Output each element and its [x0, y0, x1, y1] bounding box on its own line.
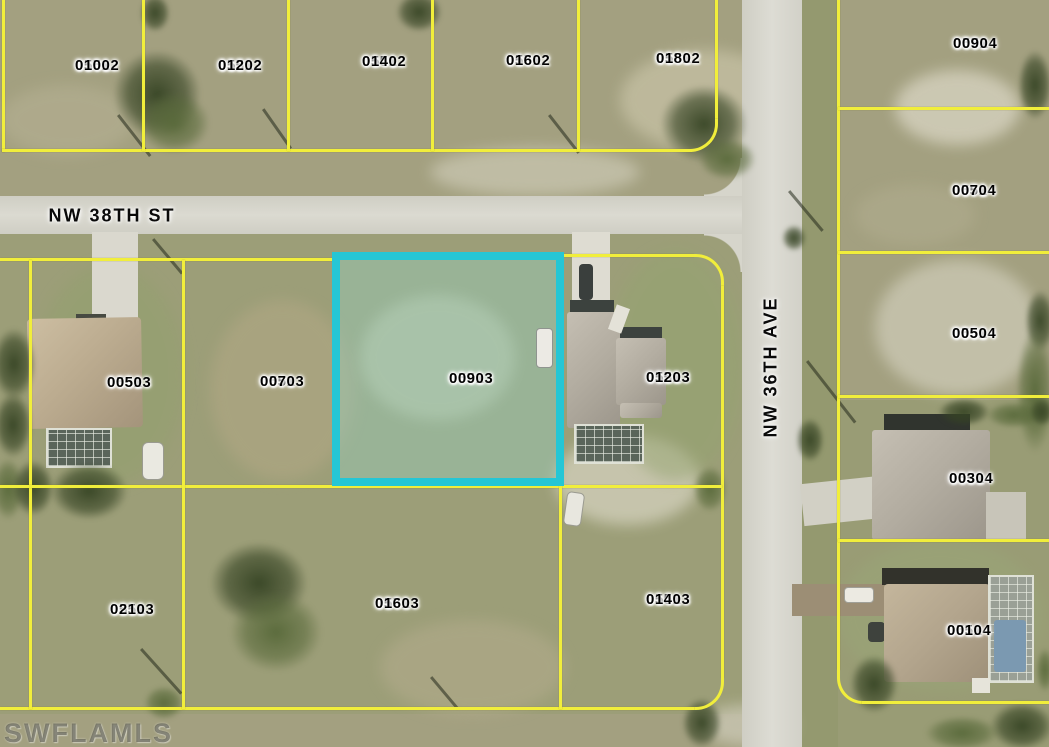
tree: [925, 716, 999, 747]
shadow: [152, 238, 183, 274]
driveway: [92, 232, 138, 320]
parcel-boundary-line: [0, 258, 334, 261]
parcel-boundary-corner: [837, 668, 867, 704]
parcel-boundary-corner: [692, 674, 724, 710]
tree: [1036, 648, 1049, 692]
car: [596, 266, 609, 298]
patio: [986, 492, 1026, 540]
tree: [50, 462, 128, 520]
house-roof: [27, 317, 143, 429]
swimming-pool: [994, 620, 1026, 672]
parcel-boundary-line: [0, 707, 694, 710]
parcel-boundary-line: [431, 0, 434, 151]
mls-watermark: SWFLAMLS: [4, 718, 173, 747]
parcel-boundary-line: [721, 286, 724, 678]
parcel-boundary-line: [562, 254, 694, 257]
car: [579, 264, 593, 300]
parcel-boundary-line: [2, 0, 5, 152]
parcel-boundary-line: [838, 539, 1049, 542]
boat: [142, 442, 164, 480]
tree: [12, 460, 54, 516]
shadow: [806, 360, 856, 423]
tree: [396, 0, 442, 32]
sand-patch: [430, 148, 640, 196]
parcel-boundary-line: [287, 0, 290, 151]
car: [536, 328, 553, 368]
tree: [230, 592, 322, 672]
parcel-boundary-line: [559, 485, 562, 709]
street-label-nw-36th-ave: NW 36TH AVE: [761, 296, 782, 437]
parcel-boundary-line: [2, 149, 692, 152]
parcel-boundary-line: [182, 260, 185, 709]
tree: [782, 225, 806, 251]
tree: [138, 92, 210, 154]
parcel-boundary-line: [577, 0, 580, 151]
patio: [972, 678, 990, 693]
grass-patch: [360, 295, 515, 420]
parcel-boundary-line: [715, 0, 718, 118]
bush-row: [1030, 398, 1049, 426]
terrain-tint: [802, 0, 838, 747]
tree: [0, 392, 32, 458]
car: [844, 587, 874, 603]
street-label-nw-38th-st: NW 38TH ST: [48, 206, 175, 227]
aerial-parcel-map: 055120100 055120120 055120140 055120160 …: [0, 0, 1049, 747]
parcel-boundary-line: [142, 0, 145, 151]
parcel-boundary-line: [838, 251, 1049, 254]
tree: [1016, 328, 1049, 453]
tree: [796, 418, 824, 462]
pool-enclosure: [574, 424, 644, 464]
boat: [563, 491, 586, 527]
car: [868, 622, 885, 642]
parcel-boundary-line: [837, 0, 840, 670]
house-roof-dark-section: [882, 568, 989, 585]
bush-row: [938, 398, 990, 426]
driveway: [792, 584, 892, 616]
parcel-boundary-line: [862, 701, 1049, 704]
parcel-boundary-line: [838, 395, 1049, 398]
parcel-boundary-line: [838, 107, 1049, 110]
tree: [990, 702, 1049, 747]
sand-patch: [380, 620, 565, 715]
house-roof: [620, 403, 662, 418]
